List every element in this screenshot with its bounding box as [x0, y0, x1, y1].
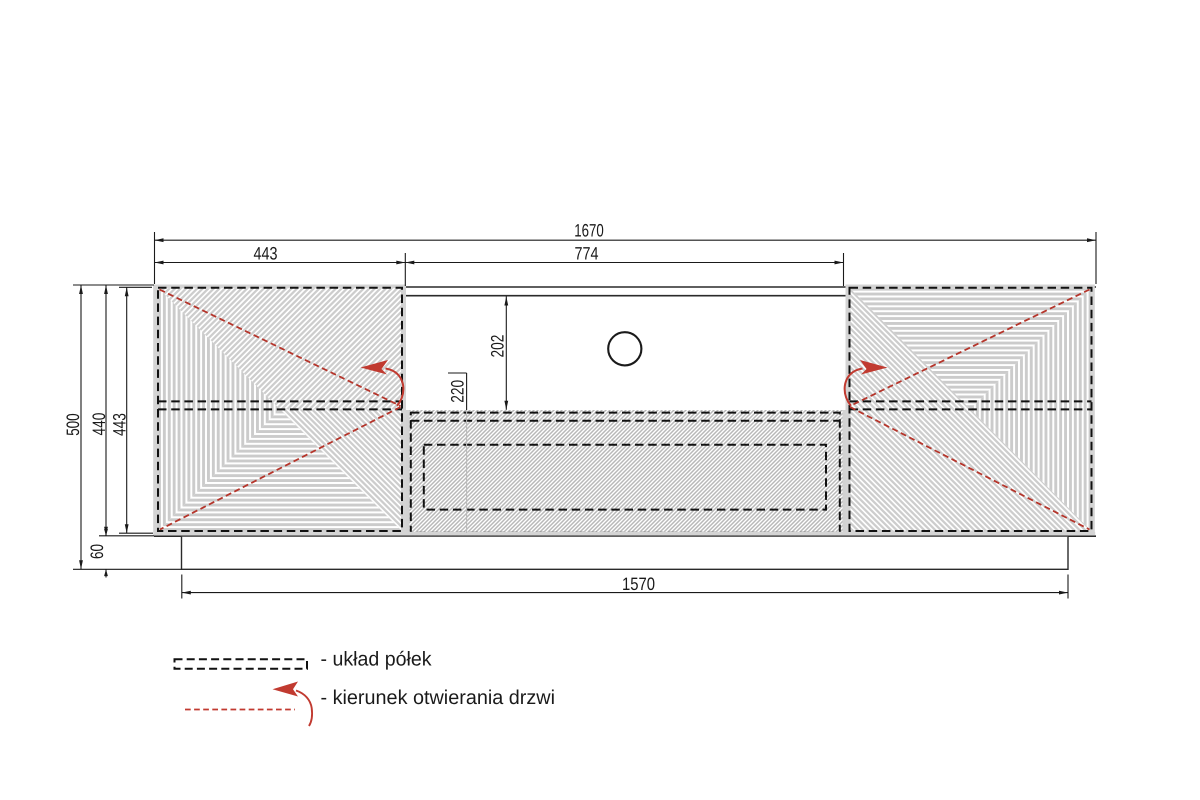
svg-text:220: 220 [448, 380, 468, 403]
svg-text:202: 202 [488, 335, 508, 358]
svg-text:443: 443 [254, 244, 278, 264]
svg-text:60: 60 [87, 544, 107, 559]
svg-text:443: 443 [110, 413, 130, 436]
svg-text:1570: 1570 [622, 574, 655, 594]
svg-text:1670: 1670 [574, 221, 604, 241]
svg-text:- kierunek otwierania drzwi: - kierunek otwierania drzwi [321, 687, 556, 709]
svg-text:774: 774 [575, 244, 599, 264]
svg-text:500: 500 [63, 413, 83, 435]
svg-text:- układ półek: - układ półek [321, 649, 433, 671]
svg-text:440: 440 [89, 413, 109, 436]
